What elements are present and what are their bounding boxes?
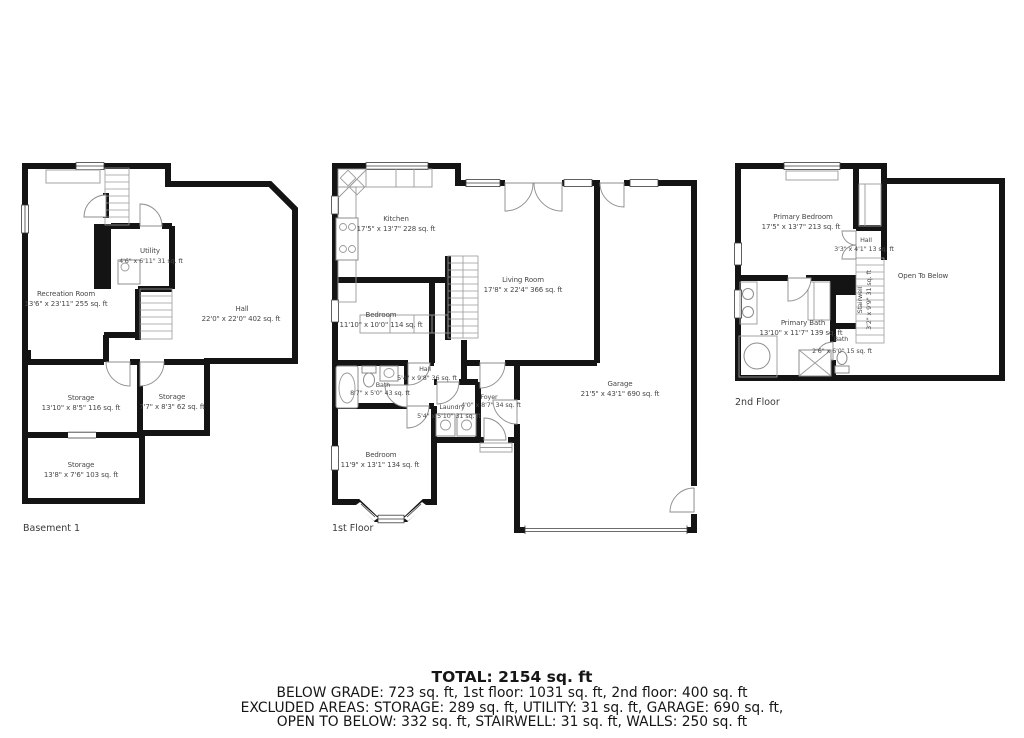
second-floor-wall-block [830, 280, 856, 295]
room-dims-primary-bath: 13'10" x 11'7" 139 sq. ft [760, 329, 843, 337]
room-dims-recreation: 13'6" x 23'11" 255 sq. ft [25, 300, 108, 308]
room-label-stairwell: Stairwell [856, 286, 864, 313]
summary-total: TOTAL: 2154 sq. ft [0, 669, 1024, 686]
room-label-hall-basement: Hall [235, 305, 248, 313]
summary-excluded-1: EXCLUDED AREAS: STORAGE: 289 sq. ft, UTI… [0, 701, 1024, 716]
summary-by-floor: BELOW GRADE: 723 sq. ft, 1st floor: 1031… [0, 686, 1024, 701]
basement-plan: Recreation Room 13'6" x 23'11" 255 sq. f… [22, 163, 295, 534]
room-dims-garage: 21'5" x 43'1" 690 sq. ft [581, 390, 660, 398]
window-icon [564, 180, 592, 187]
room-label-primary-bath: Primary Bath [781, 319, 825, 327]
stove-icon [336, 218, 358, 260]
room-dims-storage1: 13'10" x 8'5" 116 sq. ft [42, 404, 121, 412]
room-dims-utility: 4'6" x 6'11" 31 sq. ft [119, 257, 183, 265]
room-label-utility: Utility [140, 247, 160, 255]
summary-block: TOTAL: 2154 sq. ft BELOW GRADE: 723 sq. … [0, 669, 1024, 730]
sink-icon [380, 366, 398, 381]
room-label-recreation: Recreation Room [37, 290, 95, 298]
room-dims-hall-basement: 22'0" x 22'0" 402 sq. ft [202, 315, 281, 323]
first-floor-plan: Kitchen 17'5" x 13'7" 228 sq. ft Living … [332, 163, 698, 535]
room-label-bath: Bath [376, 381, 391, 389]
room-dims-foyer: 4'0" x 8'7" 34 sq. ft [461, 401, 521, 409]
room-dims-bath: 8'7" x 5'0" 43 sq. ft [350, 389, 410, 397]
room-label-hall-first: Hall [419, 365, 431, 373]
room-label-hall-second: Hall [860, 236, 872, 244]
room-dims-storage2: 7'7" x 8'3" 62 sq. ft [139, 403, 205, 411]
room-label-kitchen: Kitchen [383, 215, 409, 223]
entry-landing-icon [480, 443, 512, 452]
room-label-bedroom-front: Bedroom [366, 451, 397, 459]
room-dims-bedroom-front: 11'9" x 13'1" 134 sq. ft [341, 461, 420, 469]
room-label-open-to-below: Open To Below [898, 272, 949, 280]
window-icon [735, 290, 742, 318]
room-dims-kitchen: 17'5" x 13'7" 228 sq. ft [357, 225, 436, 233]
toilet-icon [362, 366, 376, 387]
room-label-living: Living Room [502, 276, 544, 284]
room-dims-living: 17'8" x 22'4" 366 sq. ft [484, 286, 563, 294]
room-dims-stairwell: 3'2" x 9'9" 31 sq. ft [865, 270, 873, 330]
room-dims-primary-bedroom: 17'5" x 13'7" 213 sq. ft [762, 223, 841, 231]
room-dims-bedroom-mid: 11'10" x 10'0" 114 sq. ft [340, 321, 423, 329]
room-label-bedroom-mid: Bedroom [366, 311, 397, 319]
window-icon [332, 446, 339, 470]
window-icon [735, 243, 742, 265]
floorplan-page: Recreation Room 13'6" x 23'11" 255 sq. f… [0, 0, 1024, 738]
basement-chimney-block [94, 224, 111, 289]
room-dims-storage3: 13'8" x 7'6" 103 sq. ft [44, 471, 119, 479]
room-label-storage2: Storage [159, 393, 186, 401]
room-label-primary-bedroom: Primary Bedroom [773, 213, 833, 221]
room-label-storage1: Storage [68, 394, 95, 402]
second-floor-plan: Primary Bedroom 17'5" x 13'7" 213 sq. ft… [735, 163, 1002, 408]
room-dims-laundry: 5'4" x 5'10" 31 sq. ft [417, 412, 481, 420]
room-label-storage3: Storage [68, 461, 95, 469]
window-icon [332, 300, 339, 322]
room-dims-small-bath: 2'6" x 6'0" 15 sq. ft [812, 347, 872, 355]
bathtub-icon [336, 366, 358, 408]
window-icon [630, 180, 658, 187]
floorplan-canvas: Recreation Room 13'6" x 23'11" 255 sq. f… [0, 0, 1024, 738]
room-label-small-bath: Bath [834, 335, 849, 343]
summary-excluded-2: OPEN TO BELOW: 332 sq. ft, STAIRWELL: 31… [0, 715, 1024, 730]
basement-wall-pier [22, 350, 31, 362]
room-dims-hall-second: 3'3" x 4'1" 13 sq. ft [834, 245, 894, 253]
room-label-garage: Garage [607, 380, 632, 388]
floor-name-second: 2nd Floor [735, 397, 780, 408]
room-label-foyer: Foyer [480, 393, 498, 401]
floor-name-first: 1st Floor [332, 523, 373, 534]
floor-name-basement: Basement 1 [23, 523, 80, 534]
room-dims-hall-first: 5'4" x 9'8" 36 sq. ft [397, 374, 457, 382]
